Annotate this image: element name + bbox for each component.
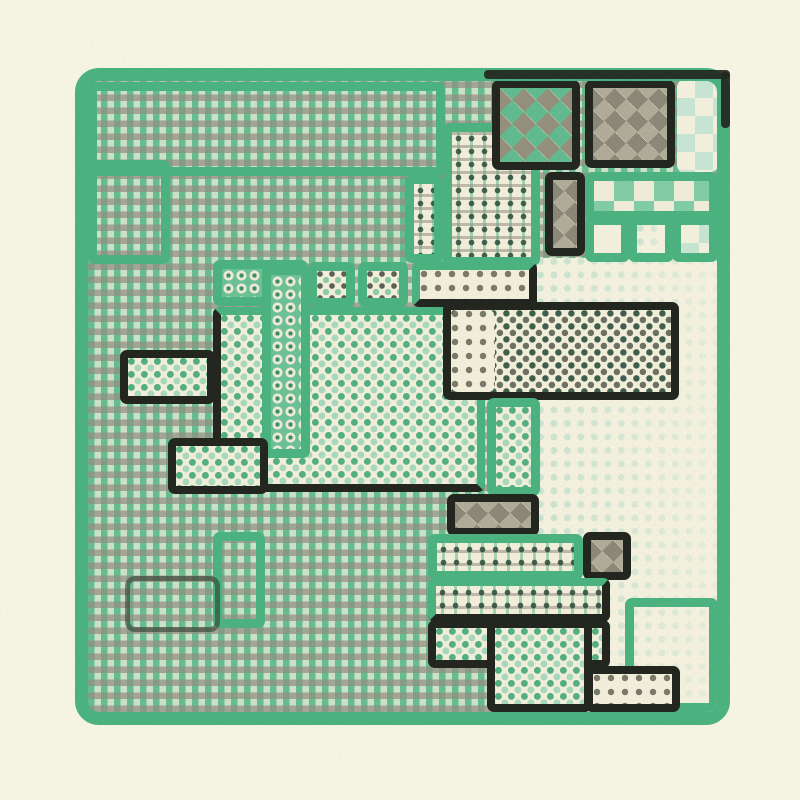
argyle-cell-a [545, 172, 585, 256]
outline-room-topleft [88, 160, 170, 264]
dot-box-b [358, 262, 408, 307]
checker-corner-strip [677, 80, 718, 172]
argyle-room-a [492, 80, 580, 170]
left-dots-room-a [120, 350, 215, 404]
windowpane-room-left [405, 175, 443, 263]
left-dots-room-b [168, 438, 268, 494]
artwork-frame [75, 68, 730, 725]
artwork-page [0, 0, 800, 800]
blank-cell [585, 216, 630, 262]
outline-room-bottomleft-b [125, 576, 220, 632]
windowpane-band-a [428, 534, 583, 580]
dot-box-a [308, 262, 355, 307]
argyle-room-b [585, 80, 675, 168]
argyle-room-c [447, 494, 539, 536]
windowpane-band-b [428, 578, 610, 622]
gray-dots-cell [451, 310, 495, 392]
checker-row [585, 172, 718, 220]
dot-box-c [412, 262, 537, 307]
outline-room-bottomleft-a [213, 532, 265, 628]
argyle-cell-b [583, 532, 631, 580]
side-dots-room [487, 398, 540, 496]
frame-accent-right [721, 72, 730, 128]
checker-cell-faint [672, 216, 718, 262]
bottom-dots-room-b [487, 620, 592, 712]
faint-dots-cell [628, 216, 674, 262]
gray-dots-box [585, 666, 680, 712]
frame-accent-top [484, 70, 730, 79]
rings-column [262, 266, 310, 458]
